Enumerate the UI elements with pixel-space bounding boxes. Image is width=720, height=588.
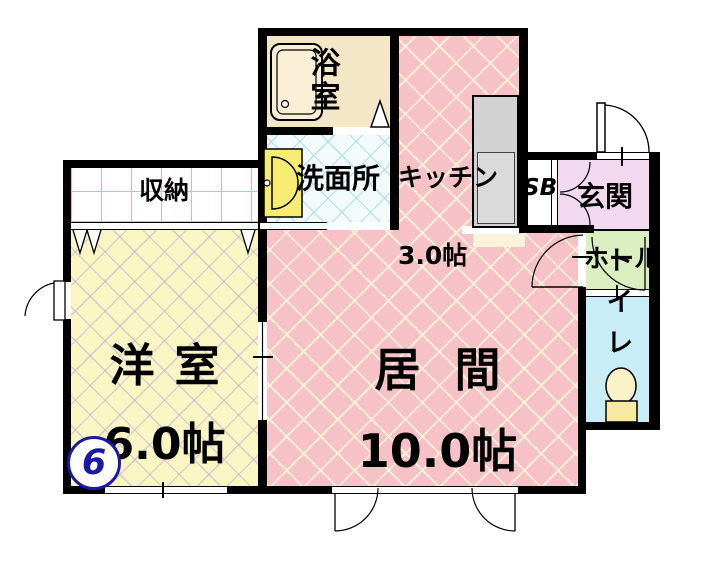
- kitchen-size: 3.0帖: [398, 243, 498, 269]
- floor-plan: 浴室 洗面所 キッチン 3.0帖 SB 玄関 ホール トイレ 収納 洋室 6.0…: [0, 0, 720, 588]
- kitchen-name: キッチン: [398, 165, 498, 191]
- living-door-arc: [532, 235, 583, 287]
- western-room-name: 洋室: [71, 342, 278, 389]
- entrance-door-arc: [605, 105, 649, 152]
- closet-label: 収納: [139, 178, 189, 204]
- sink-faucet: [264, 180, 270, 186]
- closet-fold-marker: [73, 230, 87, 253]
- living-room-name: 居間: [300, 346, 609, 394]
- bath-label: 浴室: [306, 47, 338, 115]
- closet-fold-marker: [241, 230, 255, 253]
- left-window-arc: [25, 283, 54, 316]
- living-room-size: 10.0帖: [300, 427, 575, 475]
- entrance-door-leaf: [597, 103, 605, 152]
- bathtub-drain: [282, 101, 289, 108]
- left-window-leaf: [54, 281, 65, 320]
- kitchen-label: キッチン 3.0帖: [398, 112, 498, 322]
- washroom-label: 洗面所: [296, 164, 380, 193]
- entrance-label: 玄関: [577, 182, 633, 211]
- bath-door-marker: [371, 101, 389, 127]
- toilet-icon: [606, 368, 636, 404]
- unit-number-badge: 6: [67, 436, 121, 490]
- living-room-label: 居間 10.0帖: [300, 312, 575, 509]
- shoebox-label: SB: [523, 176, 557, 200]
- closet-fold-marker: [87, 230, 101, 253]
- toilet-tank: [606, 401, 637, 422]
- unit-number: 6: [82, 443, 106, 483]
